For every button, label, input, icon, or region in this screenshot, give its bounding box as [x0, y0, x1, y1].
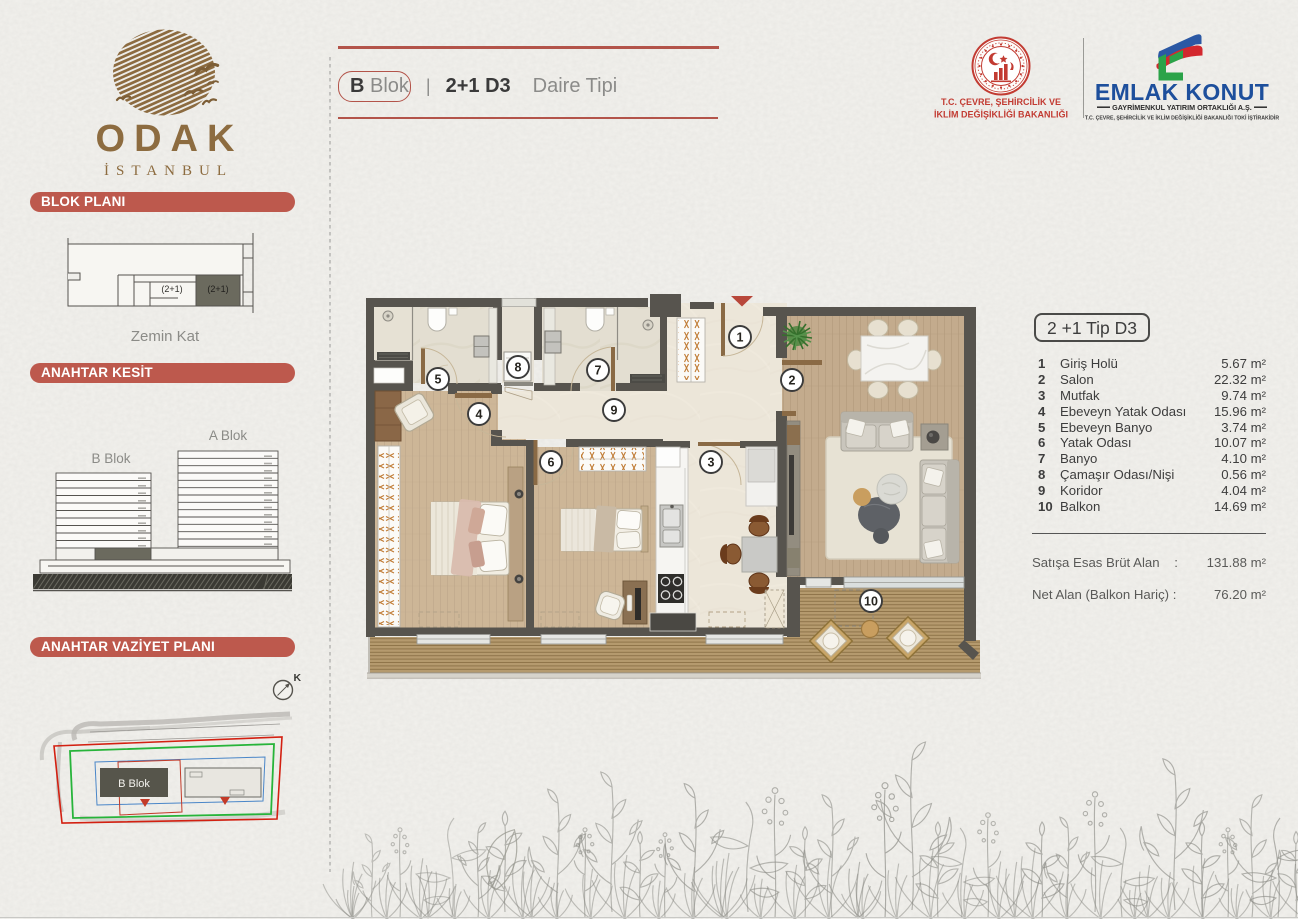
svg-text:4: 4	[476, 408, 483, 422]
svg-text:3: 3	[708, 456, 715, 470]
svg-text:EMLAK KONUT: EMLAK KONUT	[1095, 79, 1269, 105]
svg-text:B Blok: B Blok	[91, 451, 130, 466]
svg-text:(2+1): (2+1)	[207, 284, 228, 294]
svg-text:1: 1	[737, 331, 744, 345]
svg-text:İKLİM DEĞİŞİKLİĞİ BAKANLIĞI: İKLİM DEĞİŞİKLİĞİ BAKANLIĞI	[934, 109, 1068, 120]
svg-text:7: 7	[595, 364, 602, 378]
svg-text:K: K	[294, 672, 302, 684]
svg-text:10: 10	[864, 595, 878, 609]
svg-text:6: 6	[548, 456, 555, 470]
svg-text:GAYRİMENKUL YATIRIM ORTAKLIĞI: GAYRİMENKUL YATIRIM ORTAKLIĞI A.Ş.	[1112, 103, 1252, 112]
svg-text:A Blok: A Blok	[209, 428, 248, 443]
svg-text:9: 9	[611, 404, 618, 418]
svg-text:T.C. ÇEVRE, ŞEHİRCİLİK VE İKLİ: T.C. ÇEVRE, ŞEHİRCİLİK VE İKLİM DEĞİŞİKL…	[1085, 114, 1279, 122]
svg-text:8: 8	[515, 361, 522, 375]
svg-text:T.C. ÇEVRE, ŞEHİRCİLİK VE: T.C. ÇEVRE, ŞEHİRCİLİK VE	[941, 97, 1061, 107]
svg-text:B Blok: B Blok	[118, 778, 150, 790]
svg-text:Zemin Kat: Zemin Kat	[131, 328, 200, 345]
svg-text:2: 2	[789, 374, 796, 388]
svg-text:(2+1): (2+1)	[161, 284, 182, 294]
svg-text:5: 5	[435, 373, 442, 387]
